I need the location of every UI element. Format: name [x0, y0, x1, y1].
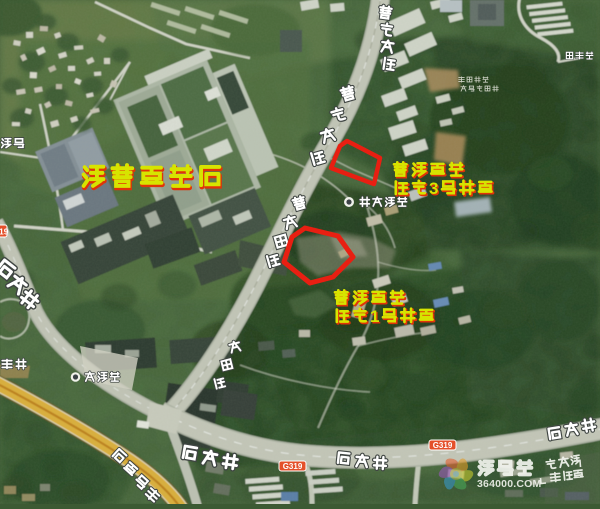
svg-text:1: 1	[370, 307, 379, 326]
svg-text:G319: G319	[433, 441, 453, 450]
svg-text:3: 3	[429, 179, 438, 198]
svg-text:19: 19	[0, 227, 9, 237]
svg-text:G319: G319	[283, 462, 303, 471]
svg-text:364000.COM: 364000.COM	[477, 478, 542, 490]
